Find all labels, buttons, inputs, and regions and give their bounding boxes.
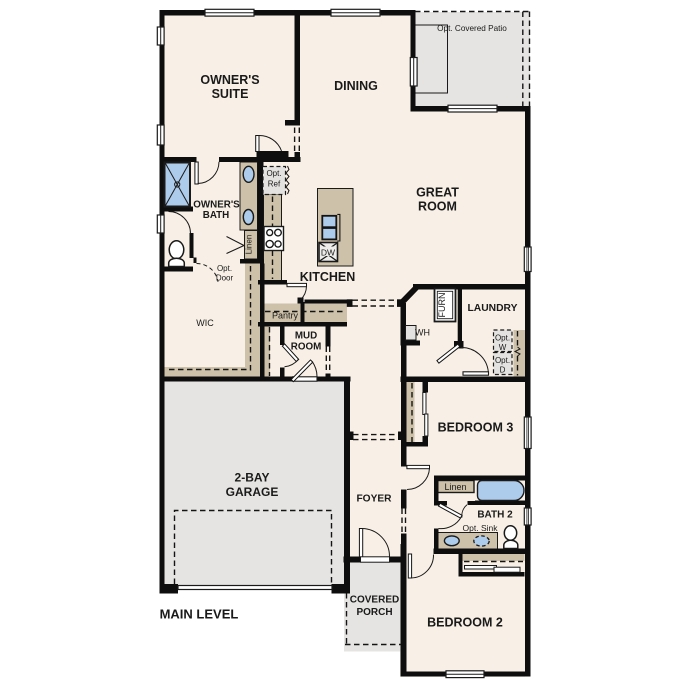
svg-text:ROOM: ROOM: [418, 200, 457, 214]
svg-text:Opt. Sink: Opt. Sink: [463, 523, 499, 533]
svg-text:Opt. Covered Patio: Opt. Covered Patio: [437, 24, 507, 33]
svg-text:Door: Door: [216, 274, 234, 283]
svg-text:DW: DW: [321, 248, 335, 258]
svg-text:Opt.: Opt.: [495, 356, 510, 365]
svg-text:LAUNDRY: LAUNDRY: [468, 303, 518, 314]
svg-text:BATH 2: BATH 2: [477, 510, 513, 521]
svg-text:MAIN LEVEL: MAIN LEVEL: [160, 606, 239, 621]
svg-text:D: D: [500, 366, 506, 375]
svg-text:BATH: BATH: [203, 210, 229, 221]
svg-text:PORCH: PORCH: [356, 607, 392, 618]
svg-text:W: W: [499, 343, 507, 352]
svg-text:ROOM: ROOM: [291, 342, 321, 353]
svg-text:Linen: Linen: [245, 235, 254, 255]
svg-text:Ref: Ref: [268, 180, 281, 189]
svg-text:Opt.: Opt.: [495, 334, 510, 343]
svg-text:Linen: Linen: [444, 482, 466, 492]
svg-text:Opt.: Opt.: [217, 264, 232, 273]
svg-text:OWNER'S: OWNER'S: [193, 200, 240, 211]
svg-text:GREAT: GREAT: [416, 186, 459, 200]
svg-text:BEDROOM 3: BEDROOM 3: [438, 421, 514, 435]
svg-text:DINING: DINING: [334, 79, 378, 93]
svg-text:OWNER'S: OWNER'S: [200, 73, 259, 87]
svg-text:FOYER: FOYER: [356, 494, 392, 505]
svg-text:WIC: WIC: [196, 318, 214, 328]
svg-text:WH: WH: [415, 328, 430, 338]
svg-text:Pantry: Pantry: [272, 311, 299, 321]
svg-text:MUD: MUD: [295, 331, 317, 342]
svg-text:BEDROOM 2: BEDROOM 2: [427, 616, 503, 630]
svg-text:Opt.: Opt.: [266, 169, 281, 178]
svg-text:SUITE: SUITE: [212, 87, 249, 101]
svg-text:GARAGE: GARAGE: [226, 485, 279, 499]
svg-text:FURN: FURN: [437, 293, 447, 318]
svg-text:KITCHEN: KITCHEN: [300, 270, 356, 284]
svg-text:COVERED: COVERED: [350, 595, 399, 606]
svg-text:2-BAY: 2-BAY: [235, 471, 270, 485]
